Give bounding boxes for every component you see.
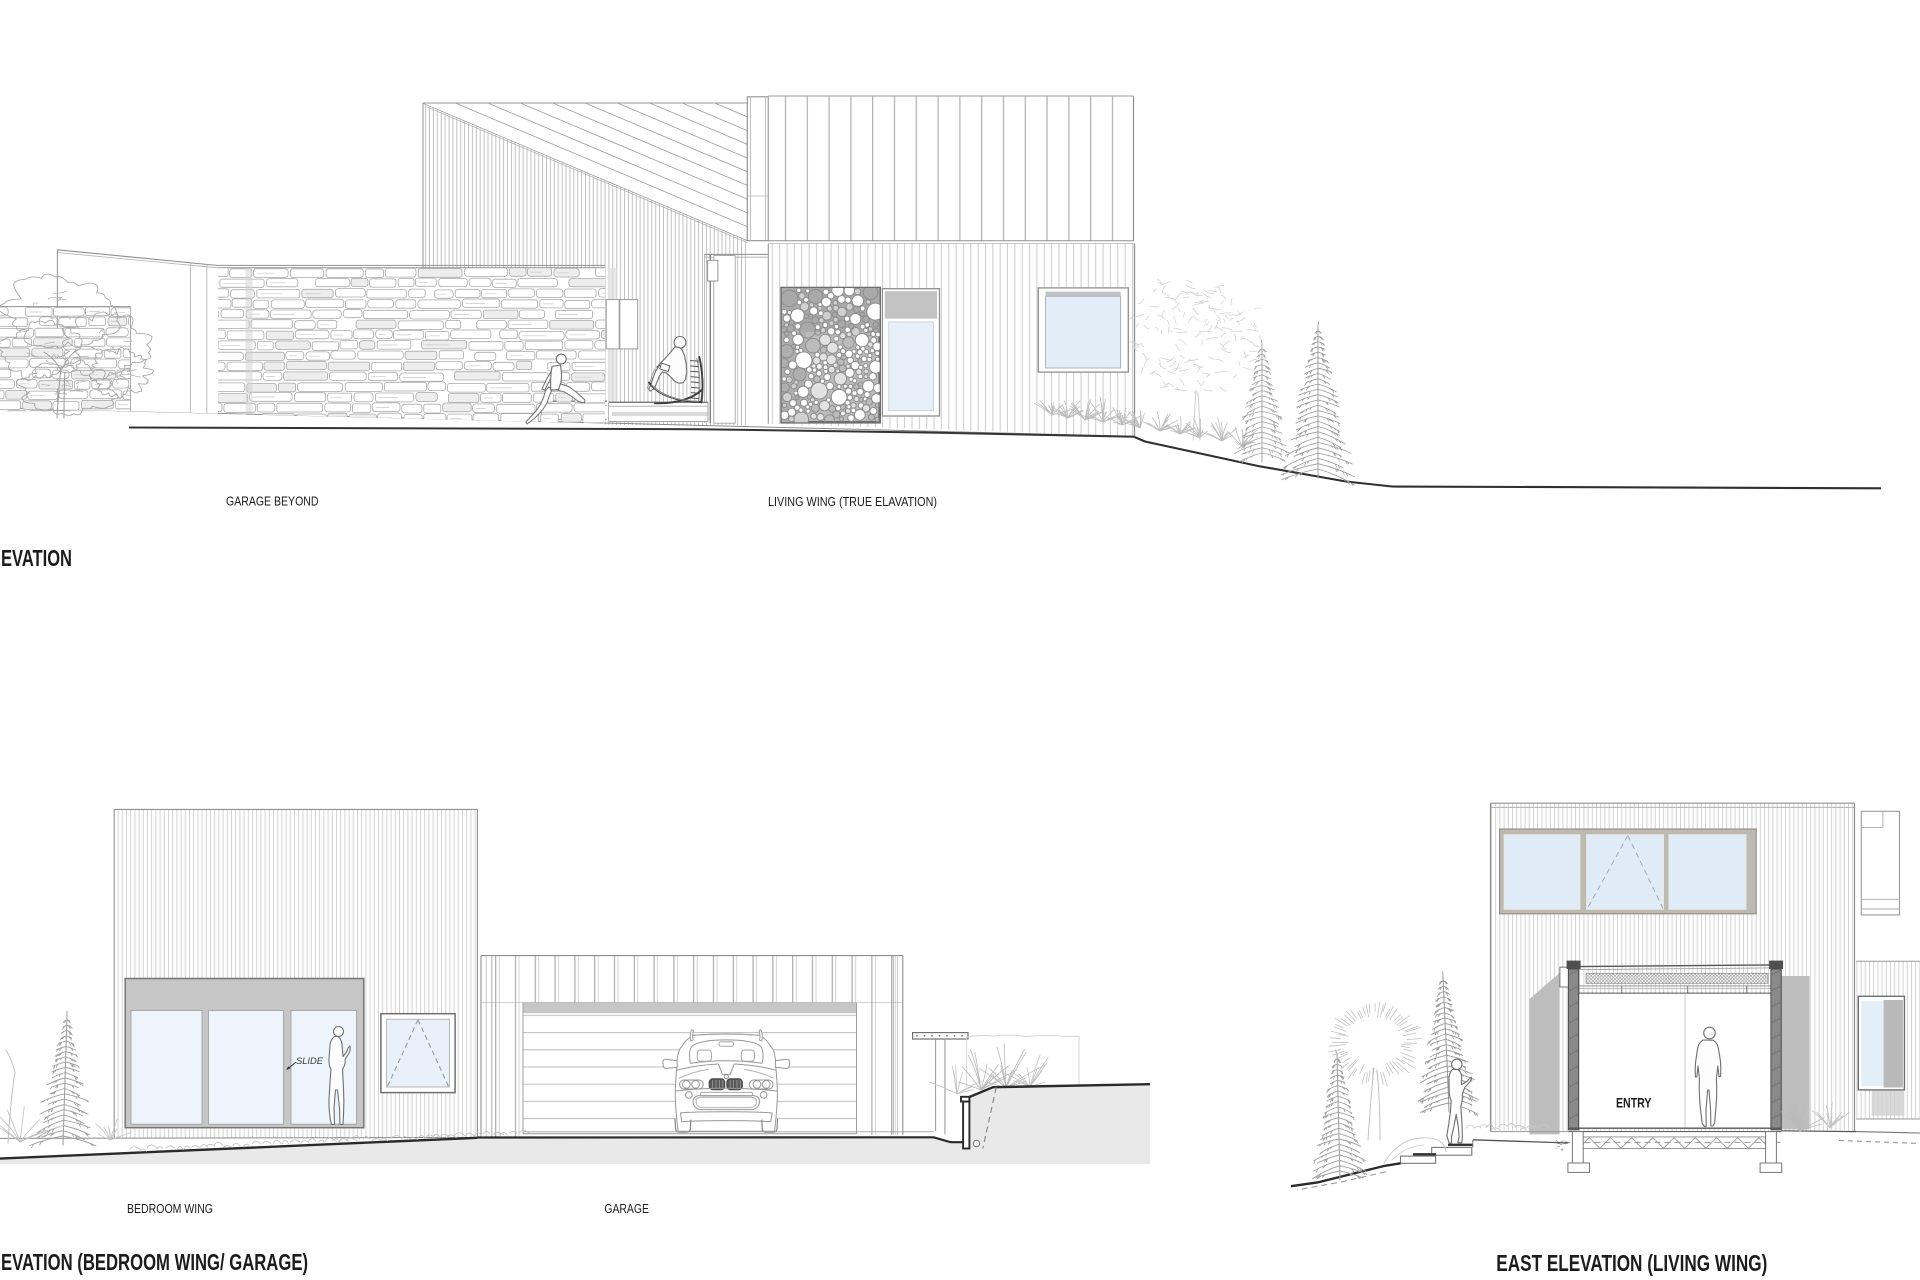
svg-text:EAST ELEVATION (LIVING WING): EAST ELEVATION (LIVING WING) — [1496, 1250, 1767, 1276]
svg-text:GARAGE BEYOND: GARAGE BEYOND — [226, 494, 319, 509]
svg-text:ENTRY: ENTRY — [1616, 1095, 1652, 1111]
svg-text:GARAGE: GARAGE — [604, 1201, 649, 1216]
svg-text:EVATION: EVATION — [1, 545, 72, 571]
svg-text:BEDROOM WING: BEDROOM WING — [127, 1201, 213, 1216]
svg-text:EVATION (BEDROOM WING/ GARAGE): EVATION (BEDROOM WING/ GARAGE) — [1, 1249, 308, 1275]
svg-text:SLIDE: SLIDE — [296, 1056, 324, 1067]
svg-text:LIVING WING (TRUE ELAVATION): LIVING WING (TRUE ELAVATION) — [768, 494, 937, 509]
